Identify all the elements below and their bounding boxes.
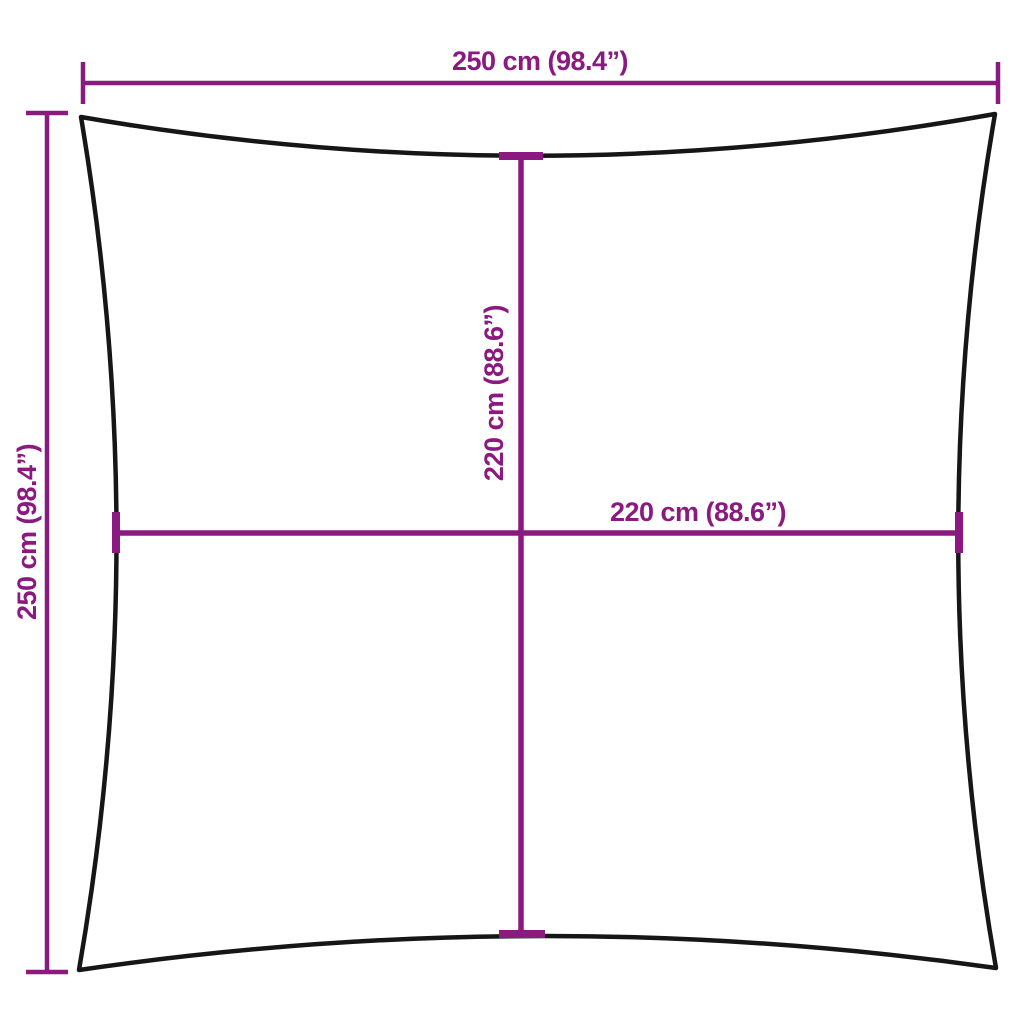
inner-height-dimension: 220 cm (88.6”) bbox=[479, 155, 545, 934]
inner-width-dimension: 220 cm (88.6”) bbox=[116, 497, 959, 553]
inner-width-label: 220 cm (88.6”) bbox=[610, 497, 786, 527]
shade-sail-diagram-svg: 250 cm (98.4”) 250 cm (98.4”) 220 cm (88… bbox=[0, 0, 1024, 1024]
top-width-dimension: 250 cm (98.4”) bbox=[83, 46, 998, 104]
left-height-label: 250 cm (98.4”) bbox=[12, 444, 42, 620]
left-height-dimension: 250 cm (98.4”) bbox=[12, 113, 68, 972]
top-width-label: 250 cm (98.4”) bbox=[452, 46, 628, 76]
product-dimension-diagram: 250 cm (98.4”) 250 cm (98.4”) 220 cm (88… bbox=[0, 0, 1024, 1024]
shade-sail-outline bbox=[79, 114, 996, 970]
inner-height-label: 220 cm (88.6”) bbox=[479, 305, 509, 481]
